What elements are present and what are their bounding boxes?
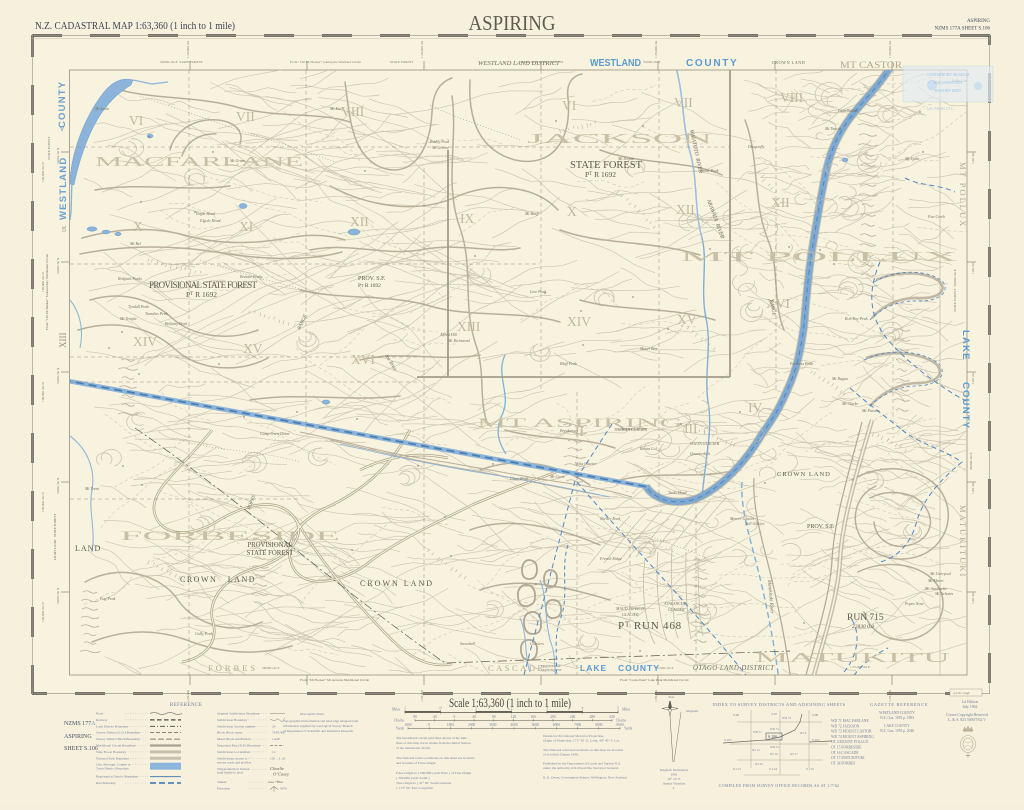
svg-text:MT POLLUX: MT POLLUX <box>680 250 958 265</box>
svg-text:Charlie: Charlie <box>270 766 284 771</box>
svg-text:COMPILED FROM SURVEY OFFICE RE: COMPILED FROM SURVEY OFFICE RECORDS AS A… <box>719 783 840 788</box>
svg-text:of the meridional circuit.: of the meridional circuit. <box>396 746 431 750</box>
svg-text:Tyndall Peak: Tyndall Peak <box>128 304 149 309</box>
svg-text:IX: IX <box>62 225 68 232</box>
svg-text:Bellamy Peak: Bellamy Peak <box>165 321 187 326</box>
svg-text:CROWN LAND: CROWN LAND <box>180 575 256 584</box>
svg-text:120: 120 <box>511 715 517 719</box>
svg-text:COUNTY: COUNTY <box>686 58 738 69</box>
svg-text:Mt Parana: Mt Parana <box>861 408 879 413</box>
svg-text:XI: XI <box>239 219 254 234</box>
svg-text:3: 3 <box>546 707 548 711</box>
svg-text:S.107: S.107 <box>812 738 820 742</box>
svg-text:Mt Screen: Mt Screen <box>617 156 634 161</box>
svg-text:XII: XII <box>771 195 790 210</box>
svg-text:Block Block name: Block Block name <box>217 731 243 735</box>
svg-text:120 .. 3 .20: 120 .. 3 .20 <box>270 756 286 760</box>
svg-text:Mt Curie: Mt Curie <box>549 474 565 479</box>
svg-text:WESTLAND: WESTLAND <box>58 157 69 220</box>
svg-text:3000: 3000 <box>489 723 496 727</box>
svg-text:1: 1 <box>404 707 406 711</box>
svg-text:1000: 1000 <box>447 723 454 727</box>
svg-text:Mt Trent: Mt Trent <box>84 486 100 491</box>
svg-text:VIII: VIII <box>780 90 804 105</box>
svg-text:Mt Clarke: Mt Clarke <box>841 401 859 406</box>
svg-text:OT 17 MATUKITUKI: OT 17 MATUKITUKI <box>831 756 865 760</box>
svg-text:Subdivision Section number: Subdivision Section number <box>217 724 256 728</box>
svg-text:Magnetic Declination: Magnetic Declination <box>660 768 689 772</box>
svg-text:XII: XII <box>676 202 695 217</box>
svg-text:Dragonfly: Dragonfly <box>747 144 765 149</box>
svg-text:of Geodetic Datum 1949.: of Geodetic Datum 1949. <box>543 752 579 756</box>
svg-text:ASPIRING: ASPIRING <box>967 19 990 24</box>
svg-text:4376: 4376 <box>280 787 287 791</box>
svg-text:VII: VII <box>674 95 693 110</box>
svg-text:20° 10´ E: 20° 10´ E <box>668 777 681 781</box>
svg-text:1: 1 <box>475 707 477 711</box>
svg-text:XVI: XVI <box>351 352 375 367</box>
svg-text:320: 320 <box>609 715 615 719</box>
svg-text:6000: 6000 <box>553 723 560 727</box>
svg-text:survey roads and profiles: survey roads and profiles <box>217 760 252 764</box>
svg-text:From “136 Mt Hooker” Jackson B: From “136 Mt Hooker” Jackson Bay Meridio… <box>44 254 49 330</box>
svg-text:SHEET S.106: SHEET S.106 <box>64 746 98 752</box>
svg-text:OT 4 MOUNT POLLUX: OT 4 MOUNT POLLUX <box>831 740 869 744</box>
svg-text:OT 17: OT 17 <box>790 752 798 756</box>
svg-text:L. & S. 823 5000/7/62 V: L. & S. 823 5000/7/62 V <box>948 718 986 722</box>
svg-text:Town District Boundary: Town District Boundary <box>96 767 129 771</box>
svg-text:0: 0 <box>454 715 456 719</box>
svg-text:Run Boundary: Run Boundary <box>96 781 116 785</box>
svg-text:Elgolo Head: Elgolo Head <box>199 218 221 223</box>
svg-text:{ 173° 00´ East Longitude: { 173° 00´ East Longitude <box>396 786 433 790</box>
svg-text:FORBESIDE: FORBESIDE <box>120 528 340 543</box>
svg-text:OT 34: OT 34 <box>755 762 763 766</box>
svg-text:Land District Boundary: Land District Boundary <box>96 724 129 728</box>
svg-text:WD 74: WD 74 <box>770 745 779 749</box>
svg-text:Pickelhaube: Pickelhaube <box>837 108 858 113</box>
svg-text:(and height in feet): (and height in feet) <box>217 771 244 775</box>
svg-text:OT 15 FORBESIDE: OT 15 FORBESIDE <box>831 746 862 750</box>
svg-text:From “Mt Hooker” Mt Arawata Me: From “Mt Hooker” Mt Arawata Meridional C… <box>300 677 369 682</box>
svg-text:V: V <box>60 127 64 133</box>
svg-text:Survey District (S.D.) Boundar: Survey District (S.D.) Boundary <box>96 731 140 735</box>
svg-text:Subdivision Lot number: Subdivision Lot number <box>217 750 251 754</box>
svg-text:Mt Achates: Mt Achates <box>934 591 953 596</box>
svg-text:MAUD FRANCIS: MAUD FRANCIS <box>615 606 645 611</box>
svg-text:COUNTY: COUNTY <box>57 81 68 128</box>
svg-text:Descriptive Notes: Descriptive Notes <box>299 712 325 716</box>
svg-text:REFERENCE: REFERENCE <box>170 702 202 708</box>
svg-text:Mt Liverpool: Mt Liverpool <box>929 571 952 576</box>
svg-text:Mauri Bay: Mauri Bay <box>639 346 657 351</box>
svg-text:information supplied by Geolog: information supplied by Geological Surve… <box>283 724 353 728</box>
svg-text:Volta Glacier: Volta Glacier <box>575 461 597 466</box>
svg-text:GLACIER: GLACIER <box>622 612 639 617</box>
svg-text:Mt Ragan: Mt Ragan <box>831 376 848 381</box>
svg-text:NZMS 177A SHEET S.106: NZMS 177A SHEET S.106 <box>935 27 991 32</box>
svg-text:Yards: Yards <box>396 727 405 731</box>
svg-text:Turks Head: Turks Head <box>668 490 688 495</box>
svg-text:OT 16: OT 16 <box>770 752 778 756</box>
svg-text:240: 240 <box>570 715 576 719</box>
svg-text:From “Cooks Peak” Lake Peak Me: From “Cooks Peak” Lake Peak Meridional C… <box>620 677 689 682</box>
svg-text:ASPIRING: ASPIRING <box>64 734 92 740</box>
svg-text:0: 0 <box>428 723 430 727</box>
svg-text:III: III <box>684 421 698 436</box>
svg-text:XIII: XIII <box>457 319 481 334</box>
svg-text:VII: VII <box>236 109 255 124</box>
svg-text:COUNTY: COUNTY <box>960 382 971 429</box>
svg-text:PROV. S.F.: PROV. S.F. <box>358 276 386 282</box>
svg-text:MACFARLANE: MACFARLANE <box>95 155 303 170</box>
svg-text:Breakaway: Breakaway <box>560 428 578 433</box>
svg-text:AVALANCHE: AVALANCHE <box>663 601 687 606</box>
svg-text:HISTORY DEPT: HISTORY DEPT <box>935 89 962 93</box>
svg-text:Bell Glacier: Bell Glacier <box>745 521 765 526</box>
svg-text:S.98: S.98 <box>812 713 818 717</box>
svg-text:Popes Nose: Popes Nose <box>904 601 924 606</box>
svg-text:Mt Avalanche: Mt Avalanche <box>924 586 947 591</box>
svg-text:Niobe Peak: Niobe Peak <box>699 168 719 173</box>
svg-text:National Park Boundary: National Park Boundary <box>96 756 129 760</box>
svg-text:CROWN LAND: CROWN LAND <box>772 60 805 65</box>
svg-text:Mt Richmond: Mt Richmond <box>447 338 471 343</box>
svg-text:Mt Lydia: Mt Lydia <box>904 156 919 161</box>
svg-text:w.ƒ.61. map: w.ƒ.61. map <box>953 691 970 695</box>
svg-text:Bluff Peak: Bluff Peak <box>560 361 577 366</box>
svg-text:The National Grid coordinates: The National Grid coordinates on this sh… <box>396 756 475 760</box>
svg-text:N.Z. Gaz. 1955 p. 1903: N.Z. Gaz. 1955 p. 1903 <box>880 716 914 720</box>
svg-text:N.Z. CADASTRAL MAP 1:63,360 (1: N.Z. CADASTRAL MAP 1:63,360 (1 inch to 1… <box>35 21 235 32</box>
svg-text:MEMORIAL: MEMORIAL <box>926 107 953 112</box>
svg-text:WESTLAND: WESTLAND <box>590 58 641 69</box>
svg-text:Crown Copyright Reserved: Crown Copyright Reserved <box>946 713 988 717</box>
svg-text:Ruddy Peak: Ruddy Peak <box>429 139 449 144</box>
svg-text:8000: 8000 <box>595 723 602 727</box>
svg-text:of Department of Scientific an: of Department of Scientific and Industri… <box>283 729 353 733</box>
svg-text:The National Grid and Graticul: The National Grid and Graticule on this … <box>543 748 624 752</box>
svg-text:PROV. S.F.: PROV. S.F. <box>807 524 835 530</box>
svg-text:MT POLLUX: MT POLLUX <box>958 162 968 228</box>
svg-text:S.115: S.115 <box>806 767 814 771</box>
svg-text:S.106: S.106 <box>768 734 777 739</box>
svg-text:5000: 5000 <box>532 723 539 727</box>
svg-text:WD 72: WD 72 <box>770 727 779 731</box>
svg-text:1st Edition: 1st Edition <box>962 700 979 704</box>
svg-text:Datum for Provisional Mercator: Datum for Provisional Mercator Projectio… <box>543 734 604 738</box>
svg-text:Magnetic: Magnetic <box>686 709 699 713</box>
svg-text:IV: IV <box>748 400 762 415</box>
svg-text:22830 0.0: 22830 0.0 <box>852 624 874 630</box>
svg-text:IX: IX <box>460 211 474 226</box>
svg-text:WD 73: WD 73 <box>782 716 791 720</box>
svg-text:OT 4: OT 4 <box>800 731 807 735</box>
svg-text:Mt Taurus: Mt Taurus <box>824 126 842 131</box>
svg-text:Bonnar Peaks: Bonnar Peaks <box>240 274 263 279</box>
svg-text:CROWN LAND: CROWN LAND <box>777 471 831 478</box>
svg-text:Mt Bel: Mt Bel <box>129 241 142 246</box>
svg-text:Fastness Peak: Fastness Peak <box>789 361 813 366</box>
svg-text:XV: XV <box>677 312 697 327</box>
svg-text:The meridional circuit grid li: The meridional circuit grid lines shown … <box>396 736 467 740</box>
svg-text:LAND: LAND <box>75 544 101 553</box>
svg-text:OT 34 FORBES: OT 34 FORBES <box>831 761 855 765</box>
svg-text:Topographical information and: Topographical information and land edge … <box>283 719 358 723</box>
svg-text:MATUKITU: MATUKITU <box>755 651 950 666</box>
svg-text:LIGHT LAND STATE FOREST: LIGHT LAND STATE FOREST <box>53 513 57 560</box>
svg-text:JACKSON: JACKSON <box>527 132 712 147</box>
svg-text:Miles: Miles <box>622 708 631 712</box>
svg-text:4: 4 <box>582 707 584 711</box>
svg-text:INDEX TO SURVEY DISTRICTS AND: INDEX TO SURVEY DISTRICTS AND ADJOINING … <box>712 702 845 707</box>
svg-text:THERMA GLACIER: THERMA GLACIER <box>614 427 648 432</box>
svg-text:Fog Peak: Fog Peak <box>99 596 116 601</box>
svg-text:Elevation: Elevation <box>217 787 230 791</box>
svg-text:WD 73 MOUNT CASTOR: WD 73 MOUNT CASTOR <box>831 730 872 734</box>
svg-text:2000: 2000 <box>468 723 475 727</box>
svg-text:PROVISIONAL STATE FOREST: PROVISIONAL STATE FOREST <box>149 280 258 290</box>
svg-text:WD 71 MAC FARLANE: WD 71 MAC FARLANE <box>831 719 869 723</box>
svg-text:280: 280 <box>590 715 596 719</box>
svg-text:RUN 715: RUN 715 <box>847 613 884 623</box>
svg-text:lines of this map are in chain: lines of this map are in chains from the… <box>396 741 471 745</box>
svg-text:Tunnel: Tunnel <box>217 780 227 784</box>
svg-text:XIV: XIV <box>567 314 591 329</box>
svg-text:CROWN LAND: CROWN LAND <box>360 579 434 588</box>
svg-text:State Forest Boundary: State Forest Boundary <box>96 750 127 754</box>
svg-text:40: 40 <box>433 715 437 719</box>
svg-text:Miles: Miles <box>392 708 401 712</box>
svg-text:Mt Greene: Mt Greene <box>431 145 449 150</box>
svg-text:Fan Creek: Fan Creek <box>927 214 945 219</box>
svg-text:Mt Maori: Mt Maori <box>927 578 943 583</box>
svg-text:Gully Peak: Gully Peak <box>195 631 213 636</box>
svg-text:STATE FOREST: STATE FOREST <box>247 550 295 557</box>
svg-text:STATE FOREST: STATE FOREST <box>390 60 414 64</box>
svg-text:COUNTY: COUNTY <box>618 663 660 673</box>
svg-text:NZMS 177A: NZMS 177A <box>64 721 96 727</box>
svg-text:Clear Peak: Clear Peak <box>510 476 528 481</box>
svg-text:Line Peak: Line Peak <box>529 289 546 294</box>
svg-text:Bevan Col: Bevan Col <box>640 446 658 451</box>
svg-text:S.114: S.114 <box>769 767 777 771</box>
svg-text:Rob Roy Peak: Rob Roy Peak <box>844 316 868 321</box>
svg-text:Shelter Rock: Shelter Rock <box>600 516 621 521</box>
svg-text:CANTERBURY MUSEUM: CANTERBURY MUSEUM <box>926 73 970 77</box>
svg-text:S.97: S.97 <box>771 712 777 716</box>
svg-text:O’Casey: O’Casey <box>273 772 290 777</box>
svg-text:True: True <box>668 695 675 699</box>
svg-text:WD 72 JACKSON: WD 72 JACKSON <box>831 724 860 728</box>
svg-text:VIII: VIII <box>341 104 365 119</box>
svg-text:X: X <box>567 204 577 219</box>
svg-text:X: X <box>133 219 143 234</box>
svg-text:S.96: S.96 <box>733 713 739 717</box>
svg-text:LAKE: LAKE <box>580 663 607 673</box>
svg-text:Redpath Peaks: Redpath Peaks <box>117 276 142 281</box>
svg-text:80: 80 <box>413 715 417 719</box>
svg-text:Mt Barff: Mt Barff <box>524 211 540 216</box>
svg-text:12: 12 <box>272 750 276 754</box>
svg-text:1A4E: 1A4E <box>272 737 280 741</box>
svg-text:Published by the Department of: Published by the Department of Lands and… <box>543 762 621 766</box>
svg-text:S.105: S.105 <box>724 738 732 742</box>
svg-text:July 1962: July 1962 <box>963 705 978 709</box>
svg-text:Mt Temple: Mt Temple <box>119 316 137 321</box>
svg-text:0: 0 <box>440 707 442 711</box>
svg-text:XIII: XIII <box>58 333 68 349</box>
svg-text:Railway: Railway <box>96 718 108 722</box>
svg-text:LAKE COUNTY: LAKE COUNTY <box>884 724 910 728</box>
svg-text:1962: 1962 <box>671 773 678 777</box>
svg-text:WD 74 MOUNT ASPIRING: WD 74 MOUNT ASPIRING <box>831 735 874 739</box>
svg-text:1000: 1000 <box>404 723 411 727</box>
svg-text:GLACIER: GLACIER <box>668 607 685 612</box>
svg-text:Mt Kuri: Mt Kuri <box>329 106 343 111</box>
svg-text:DOCUMENTARY: DOCUMENTARY <box>933 81 962 85</box>
svg-text:XV: XV <box>243 341 263 356</box>
svg-text:Registration District Boundary: Registration District Boundary <box>96 775 138 779</box>
svg-text:40: 40 <box>472 715 476 719</box>
svg-text:5: 5 <box>617 707 619 711</box>
svg-text:Maori Block subdivision: Maori Block subdivision <box>217 737 251 741</box>
svg-text:WD 71: WD 71 <box>753 730 762 734</box>
svg-text:Meridional Circuit Boundary: Meridional Circuit Boundary <box>96 744 136 748</box>
svg-text:Annual Variation: Annual Variation <box>663 782 686 786</box>
svg-text:200: 200 <box>550 715 556 719</box>
svg-text:True Origin is { 41° 00´ S: True Origin is { 41° 00´ South Latitude <box>396 781 452 785</box>
svg-text:Snowball: Snowball <box>460 641 476 646</box>
svg-text:2´: 2´ <box>673 786 676 790</box>
svg-text:VOLTA GLACIER: VOLTA GLACIER <box>690 441 720 446</box>
svg-text:Yards: Yards <box>624 727 633 731</box>
svg-text:ASPIRING: ASPIRING <box>469 11 556 35</box>
svg-text:XIV: XIV <box>133 334 157 349</box>
svg-text:WESTLAND COUNTY: WESTLAND COUNTY <box>879 711 915 715</box>
svg-text:Subdivision Boundary: Subdivision Boundary <box>217 718 248 722</box>
svg-text:Quarterdeck: Quarterdeck <box>690 451 710 456</box>
svg-text:VI: VI <box>129 113 144 128</box>
svg-text:Chains: Chains <box>616 719 627 723</box>
svg-text:French Ridge: French Ridge <box>599 556 622 561</box>
svg-text:From “136 Mt Hooker” joining t: From “136 Mt Hooker” joining the Westlan… <box>290 59 361 64</box>
svg-text:XII: XII <box>350 214 369 229</box>
svg-text:LAKE: LAKE <box>960 330 971 361</box>
svg-text:Mt Ionia: Mt Ionia <box>94 106 109 111</box>
svg-text:N.Z. Gaz. 1955 p. 2046: N.Z. Gaz. 1955 p. 2046 <box>880 729 914 733</box>
svg-text:9000: 9000 <box>616 723 623 727</box>
svg-text:PROVISIONAL: PROVISIONAL <box>247 542 292 549</box>
svg-text:160: 160 <box>531 715 537 719</box>
svg-text:Origin of Projection: 171° 30´: Origin of Projection: 171° 30´ E. Long. … <box>543 739 620 743</box>
svg-text:Chains: Chains <box>394 719 405 723</box>
svg-text:4000: 4000 <box>510 723 517 727</box>
svg-text:Eagle Head: Eagle Head <box>195 211 216 216</box>
svg-text:STATE FOREST: STATE FOREST <box>47 136 51 160</box>
svg-text:Tantalus Peak: Tantalus Peak <box>145 311 168 316</box>
svg-text:Road: Road <box>96 712 103 716</box>
svg-text:VI: VI <box>562 98 577 113</box>
svg-text:2: 2 <box>511 707 513 711</box>
svg-text:Camp Oven Dome: Camp Oven Dome <box>260 431 290 436</box>
svg-text:Deposited Plan (D.P.) Bounda: Deposited Plan (D.P.) Boundary <box>217 744 261 748</box>
svg-text:GAZETTE REFERENCE: GAZETTE REFERENCE <box>870 702 928 707</box>
svg-text:OT 15: OT 15 <box>752 748 760 752</box>
svg-text:S.113: S.113 <box>733 767 741 771</box>
svg-text:80: 80 <box>492 715 496 719</box>
svg-text:Glaciers: Glaciers <box>530 641 544 646</box>
svg-text:Alfred Hill: Alfred Hill <box>439 332 458 337</box>
svg-text:OT 16 CASCADE: OT 16 CASCADE <box>831 751 859 755</box>
svg-text:7000: 7000 <box>574 723 581 727</box>
svg-text:24: 24 <box>272 724 276 728</box>
svg-text:Mt Grant: Mt Grant <box>229 158 246 163</box>
svg-text:MT CASTOR: MT CASTOR <box>840 61 903 71</box>
svg-text:and in terms of False Origin.: and in terms of False Origin. <box>396 761 436 765</box>
